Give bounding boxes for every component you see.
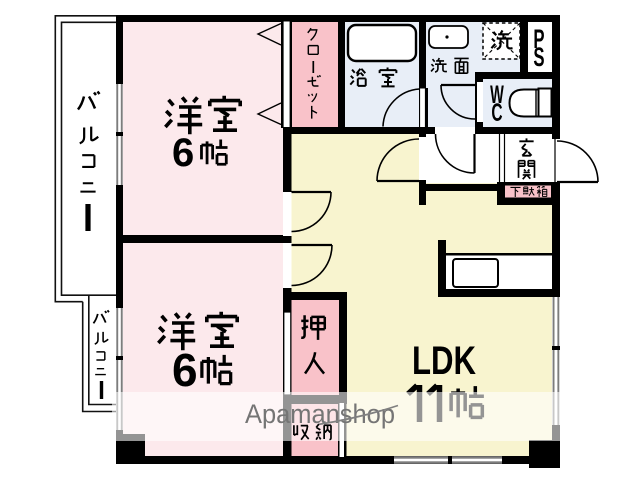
svg-text:S: S — [533, 42, 544, 72]
svg-text:6: 6 — [172, 131, 194, 175]
svg-text:C: C — [491, 99, 502, 127]
svg-text:LDK: LDK — [412, 339, 476, 383]
svg-text:6: 6 — [172, 344, 198, 396]
